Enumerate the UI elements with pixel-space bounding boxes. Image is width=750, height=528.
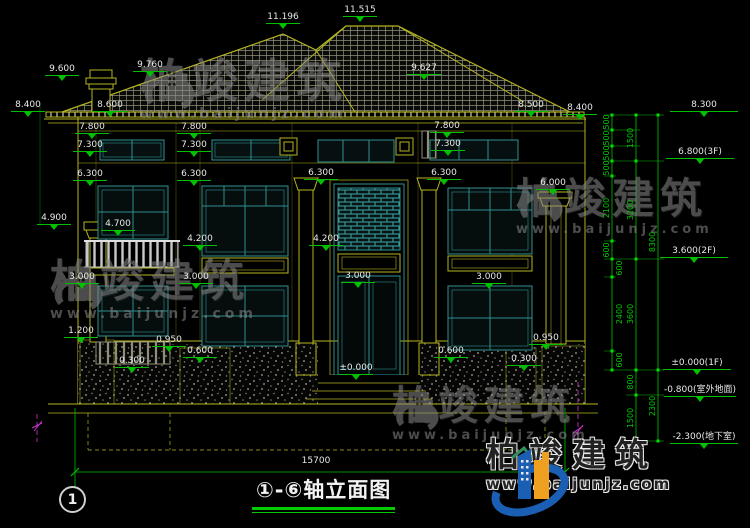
axis-grid-bubble: 1	[59, 486, 86, 513]
brand-logo-icon	[486, 438, 578, 522]
right-pilaster	[538, 192, 572, 344]
drawing-title-block: ①-⑥轴立面图	[252, 474, 395, 513]
entrance	[330, 180, 408, 375]
title-underline	[252, 512, 395, 513]
floor1-windows	[98, 286, 532, 350]
entry-door	[338, 276, 400, 375]
entry-steps	[306, 375, 432, 404]
lattice-panel	[338, 188, 400, 250]
drawing-title: ①-⑥轴立面图	[252, 474, 395, 510]
footer-brand-logo: 柏竣建筑 www.baijunjz.com	[486, 438, 671, 493]
basement-grille	[96, 342, 170, 364]
cad-canvas: 柏竣建筑 www.baijunjz.com 柏竣建筑 www.baijunjz.…	[0, 0, 750, 528]
balcony	[84, 241, 180, 275]
attic-windows	[100, 140, 518, 162]
roof	[44, 26, 586, 123]
dimension-ticks	[611, 114, 660, 443]
